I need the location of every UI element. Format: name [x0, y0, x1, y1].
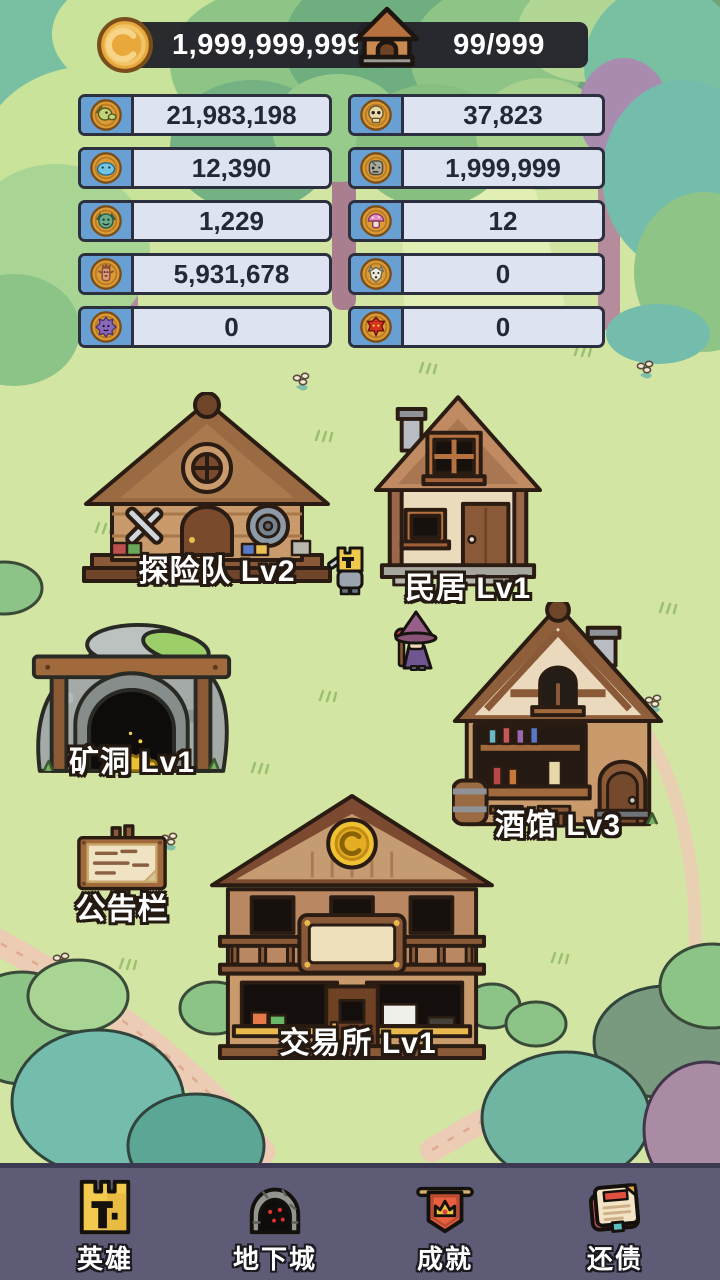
goblin-icon [89, 98, 123, 132]
resource-row-wolf: 0 [348, 253, 605, 295]
resource-row-demon: 0 [348, 306, 605, 348]
hut-icon [354, 6, 420, 72]
coin-counter: 1,999,999,999 [104, 22, 388, 68]
coin-value: 1,999,999,999 [172, 29, 364, 62]
resource-row-purple-fish: 0 [78, 306, 332, 348]
nav-label: 还债 [587, 1239, 643, 1276]
resource-row-slime: 12,390 [78, 147, 332, 189]
housing-value: 99/999 [453, 29, 545, 62]
knight-character [326, 540, 374, 598]
resource-row-skull: 37,823 [348, 94, 605, 136]
housing-counter: 99/999 [358, 22, 588, 68]
nav-item-repay-debt[interactable]: 还债 [540, 1176, 690, 1276]
building-label: 探险队 Lv2 [82, 546, 352, 590]
dungeon-icon [244, 1176, 306, 1238]
nav-label: 地下城 [233, 1239, 317, 1276]
imp-icon [89, 204, 123, 238]
resource-row-treant: 5,931,678 [78, 253, 332, 295]
resource-row-imp: 1,229 [78, 200, 332, 242]
game-screen: 1,999,999,999 99/999 21,983,198 [0, 0, 720, 1280]
purple-fish-icon [89, 310, 123, 344]
resource-value: 1,999,999 [404, 150, 602, 186]
achievement-banner-icon [414, 1176, 476, 1238]
resource-value: 5,931,678 [134, 256, 329, 292]
hero-icon [74, 1176, 136, 1238]
resource-row-mushroom: 12 [348, 200, 605, 242]
resource-row-goblin: 21,983,198 [78, 94, 332, 136]
skull-icon [359, 98, 393, 132]
nav-item-achievements[interactable]: 成就 [370, 1176, 520, 1276]
nav-item-dungeon[interactable]: 地下城 [200, 1176, 350, 1276]
nav-item-hero[interactable]: 英雄 [30, 1176, 180, 1276]
bottom-navbar: 英雄 地下城 成就 [0, 1163, 720, 1280]
demon-icon [359, 310, 393, 344]
nav-label: 成就 [417, 1239, 473, 1276]
building-label: 交易所 Lv1 [218, 1018, 498, 1062]
resource-value: 37,823 [404, 97, 602, 133]
resource-value: 0 [404, 309, 602, 345]
coin-icon [96, 16, 154, 74]
resource-panel: 21,983,198 37,823 12,390 [78, 94, 605, 348]
resource-value: 21,983,198 [134, 97, 329, 133]
resource-value: 0 [404, 256, 602, 292]
resource-row-zombie: 1,999,999 [348, 147, 605, 189]
building-label: 矿洞 Lv1 [22, 737, 242, 781]
building-label: 民居 Lv1 [384, 563, 552, 607]
ledger-book-icon [584, 1176, 646, 1238]
wolf-icon [359, 257, 393, 291]
slime-icon [89, 151, 123, 185]
resource-value: 12,390 [134, 150, 329, 186]
resource-value: 0 [134, 309, 329, 345]
resource-value: 1,229 [134, 203, 329, 239]
building-label: 公告栏 [52, 884, 192, 928]
nav-label: 英雄 [77, 1239, 133, 1276]
wizard-character [388, 608, 440, 672]
resource-value: 12 [404, 203, 602, 239]
mushroom-icon [359, 204, 393, 238]
treant-icon [89, 257, 123, 291]
zombie-icon [359, 151, 393, 185]
